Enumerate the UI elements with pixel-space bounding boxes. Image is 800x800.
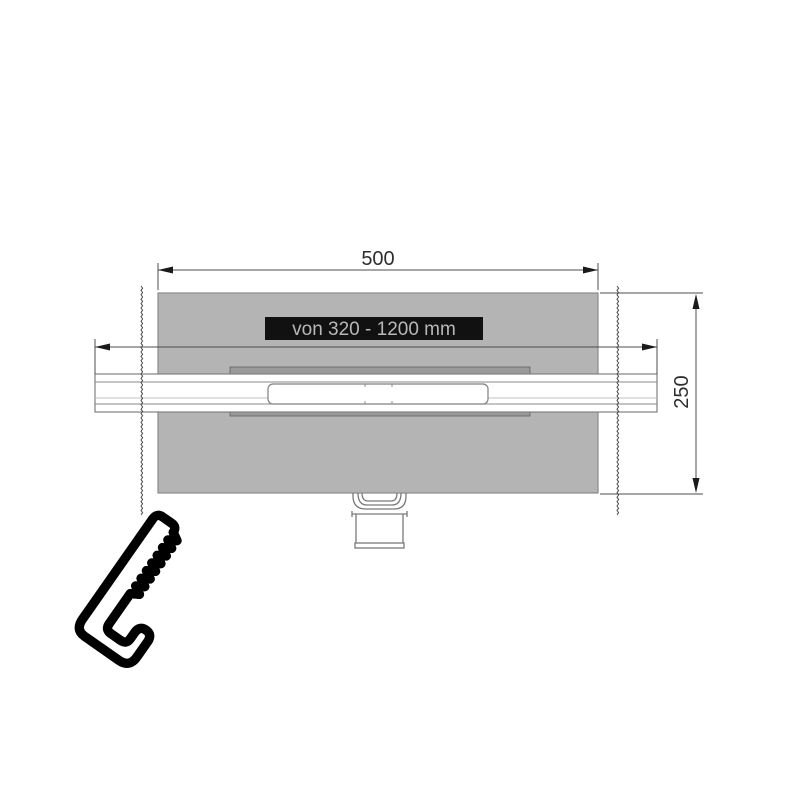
arrow-left-icon [95,344,110,351]
arrow-right-icon [583,267,598,274]
outlet-flange-line [352,511,407,517]
hacksaw-icon [75,513,211,668]
technical-drawing-page: 500 250 von 320 - 1200 mm [0,0,800,800]
drain-channel [95,374,657,412]
width-dimension: 500 [158,248,598,290]
arrow-down-icon [693,478,700,493]
outlet-collar-inner [358,493,401,505]
channel-grate [268,384,488,404]
arrow-right-icon [642,344,657,351]
drain-outlet [352,493,407,548]
technical-drawing-canvas: 500 250 von 320 - 1200 mm [0,0,800,800]
outlet-collar-inner2 [362,493,397,501]
hacksaw-outline [75,513,211,668]
height-dimension-label: 250 [671,375,693,408]
outlet-pipe-rim [355,543,404,548]
arrow-up-icon [693,294,700,309]
width-dimension-label: 500 [361,248,394,270]
length-range-label: von 320 - 1200 mm [292,319,456,340]
outlet-pipe-sides [356,514,403,543]
arrow-left-icon [158,267,173,274]
